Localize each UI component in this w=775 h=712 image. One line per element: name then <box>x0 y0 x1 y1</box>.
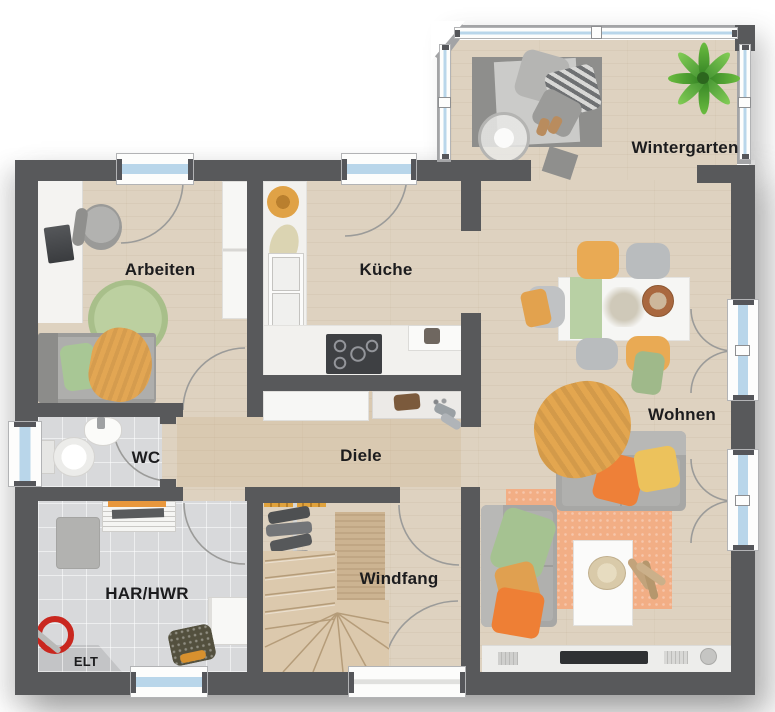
table-runner <box>570 277 602 339</box>
dining-chair-gray <box>576 338 618 370</box>
decor-tray <box>588 556 626 590</box>
wall-stub-wintergarten-right <box>697 165 755 183</box>
table-flowers <box>602 287 646 327</box>
wall-har-east <box>247 487 263 672</box>
window-kueche <box>341 153 417 185</box>
wall-kueche-south <box>261 375 463 391</box>
laptop <box>44 224 75 263</box>
dining-chair-yellow <box>577 241 619 279</box>
room-label-diele: Diele <box>301 446 421 466</box>
wardrobe <box>222 181 250 319</box>
books <box>498 652 518 665</box>
daybed-headboard <box>38 333 58 403</box>
decor-round <box>700 648 717 665</box>
toilet-bowl <box>53 437 95 477</box>
room-label-wc: WC <box>116 448 176 468</box>
pillow-yellow <box>633 445 682 494</box>
french-door-mullion <box>735 495 750 506</box>
front-door <box>348 666 466 698</box>
tv <box>560 651 648 664</box>
room-label-wintergarten: Wintergarten <box>600 138 770 158</box>
laundry-dark <box>112 508 164 519</box>
room-label-wohnen: Wohnen <box>622 405 742 425</box>
room-label-windfang: Windfang <box>339 569 459 589</box>
books <box>664 651 688 664</box>
potted-plant <box>666 44 746 116</box>
hamper <box>56 517 100 569</box>
room-label-elt: ELT <box>60 654 112 669</box>
coffee-machine <box>424 328 440 344</box>
glazing-mullion <box>738 97 751 108</box>
wall-right-exterior <box>731 165 755 695</box>
room-label-arbeiten: Arbeiten <box>100 260 220 280</box>
wall-windfang-east <box>461 487 480 672</box>
glazing-mullion <box>438 97 451 108</box>
towel-orange <box>108 501 166 507</box>
fruit-bowl <box>267 186 299 218</box>
wall-wc-south <box>38 487 183 501</box>
window-har <box>130 666 208 698</box>
side-table <box>478 112 530 164</box>
sideboard <box>263 391 369 421</box>
wall-top-exterior <box>15 160 531 181</box>
chair-cloth-green <box>630 350 666 396</box>
room-label-har-hwr: HAR/HWR <box>87 584 207 604</box>
wall-wc-east-north <box>160 403 176 424</box>
window-arbeiten <box>116 153 194 185</box>
wall-kueche-stub-north <box>461 181 481 231</box>
sink-basin <box>272 293 300 329</box>
pillow-orange <box>490 586 545 640</box>
dining-chair-gray <box>626 243 670 279</box>
faucet <box>97 417 105 429</box>
windfang-door-arc <box>399 505 459 565</box>
floor-plan: Wintergarten Arbeiten Küche Wohnen WC Di… <box>0 0 775 712</box>
har-door-arc <box>184 503 245 564</box>
window-wc <box>8 421 42 487</box>
room-label-kueche: Küche <box>326 260 446 280</box>
wall-kueche-stub-south <box>461 313 481 427</box>
wall-windfang-north <box>263 487 400 503</box>
sink-basin <box>272 257 300 291</box>
front-door-arc <box>383 601 458 676</box>
arbeiten-door-arc <box>183 348 245 410</box>
plant-center <box>697 72 709 84</box>
glazing-mullion <box>591 26 602 39</box>
french-door-mullion <box>735 345 750 356</box>
wall-arbeiten-kueche <box>247 181 263 417</box>
decor-bowl <box>642 285 674 317</box>
washer <box>208 597 248 645</box>
cooktop <box>326 334 382 374</box>
bag <box>393 393 420 411</box>
arbeiten-window-arc <box>121 181 183 243</box>
